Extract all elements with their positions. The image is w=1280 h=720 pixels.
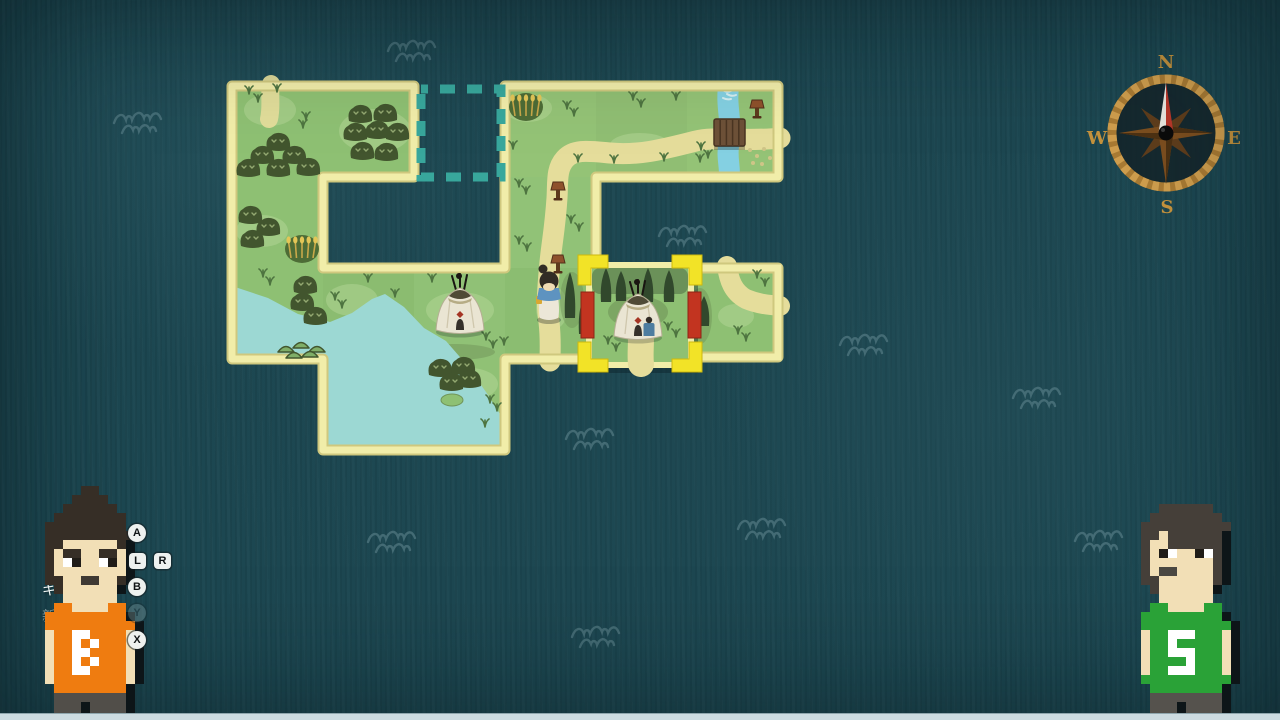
bridge: [714, 119, 745, 150]
wave-decoration: [572, 627, 619, 647]
pixel-sprite: [36, 486, 153, 720]
compass-label-west: W: [1086, 128, 1108, 149]
red-connector-bar: [581, 292, 594, 338]
red-connector-bar: [688, 292, 701, 338]
wave-decoration: [738, 519, 785, 539]
wave-decoration: [566, 429, 613, 449]
compass-label-east: E: [1227, 128, 1241, 149]
wheat-patch: [509, 93, 543, 121]
wave-decoration: [840, 335, 887, 355]
wave-decoration: [1013, 388, 1060, 408]
game-screen: N E S W キ新 ALRBYX: [0, 0, 1280, 720]
pixel-sprite: [1132, 504, 1249, 720]
compass-hub: [1159, 126, 1174, 141]
button-prompt-x[interactable]: X: [128, 631, 146, 649]
wave-decoration: [1075, 531, 1122, 551]
pixel-avatar-left: [36, 486, 153, 720]
player-hair-bun: [539, 265, 548, 274]
bottom-bar: [0, 713, 1280, 720]
wheat-patch: [285, 235, 319, 263]
wave-decoration: [114, 113, 161, 133]
compass-label-south: S: [1161, 197, 1174, 216]
compass-rose: N E S W: [1081, 36, 1251, 216]
button-prompt-y[interactable]: Y: [128, 604, 146, 622]
empty-tile-slot[interactable]: [421, 89, 501, 177]
compass-label-north: N: [1158, 52, 1174, 73]
wave-decoration: [388, 41, 435, 61]
pixel-avatar-right: [1132, 504, 1249, 720]
wave-decoration: [659, 226, 706, 246]
button-prompt-l[interactable]: L: [129, 553, 146, 569]
button-prompt-a[interactable]: A: [128, 524, 146, 542]
button-prompt-b[interactable]: B: [128, 578, 146, 596]
islet: [441, 394, 463, 406]
wave-decoration: [368, 532, 415, 552]
selected-tile[interactable]: [578, 255, 702, 373]
button-prompt-r[interactable]: R: [154, 553, 171, 569]
